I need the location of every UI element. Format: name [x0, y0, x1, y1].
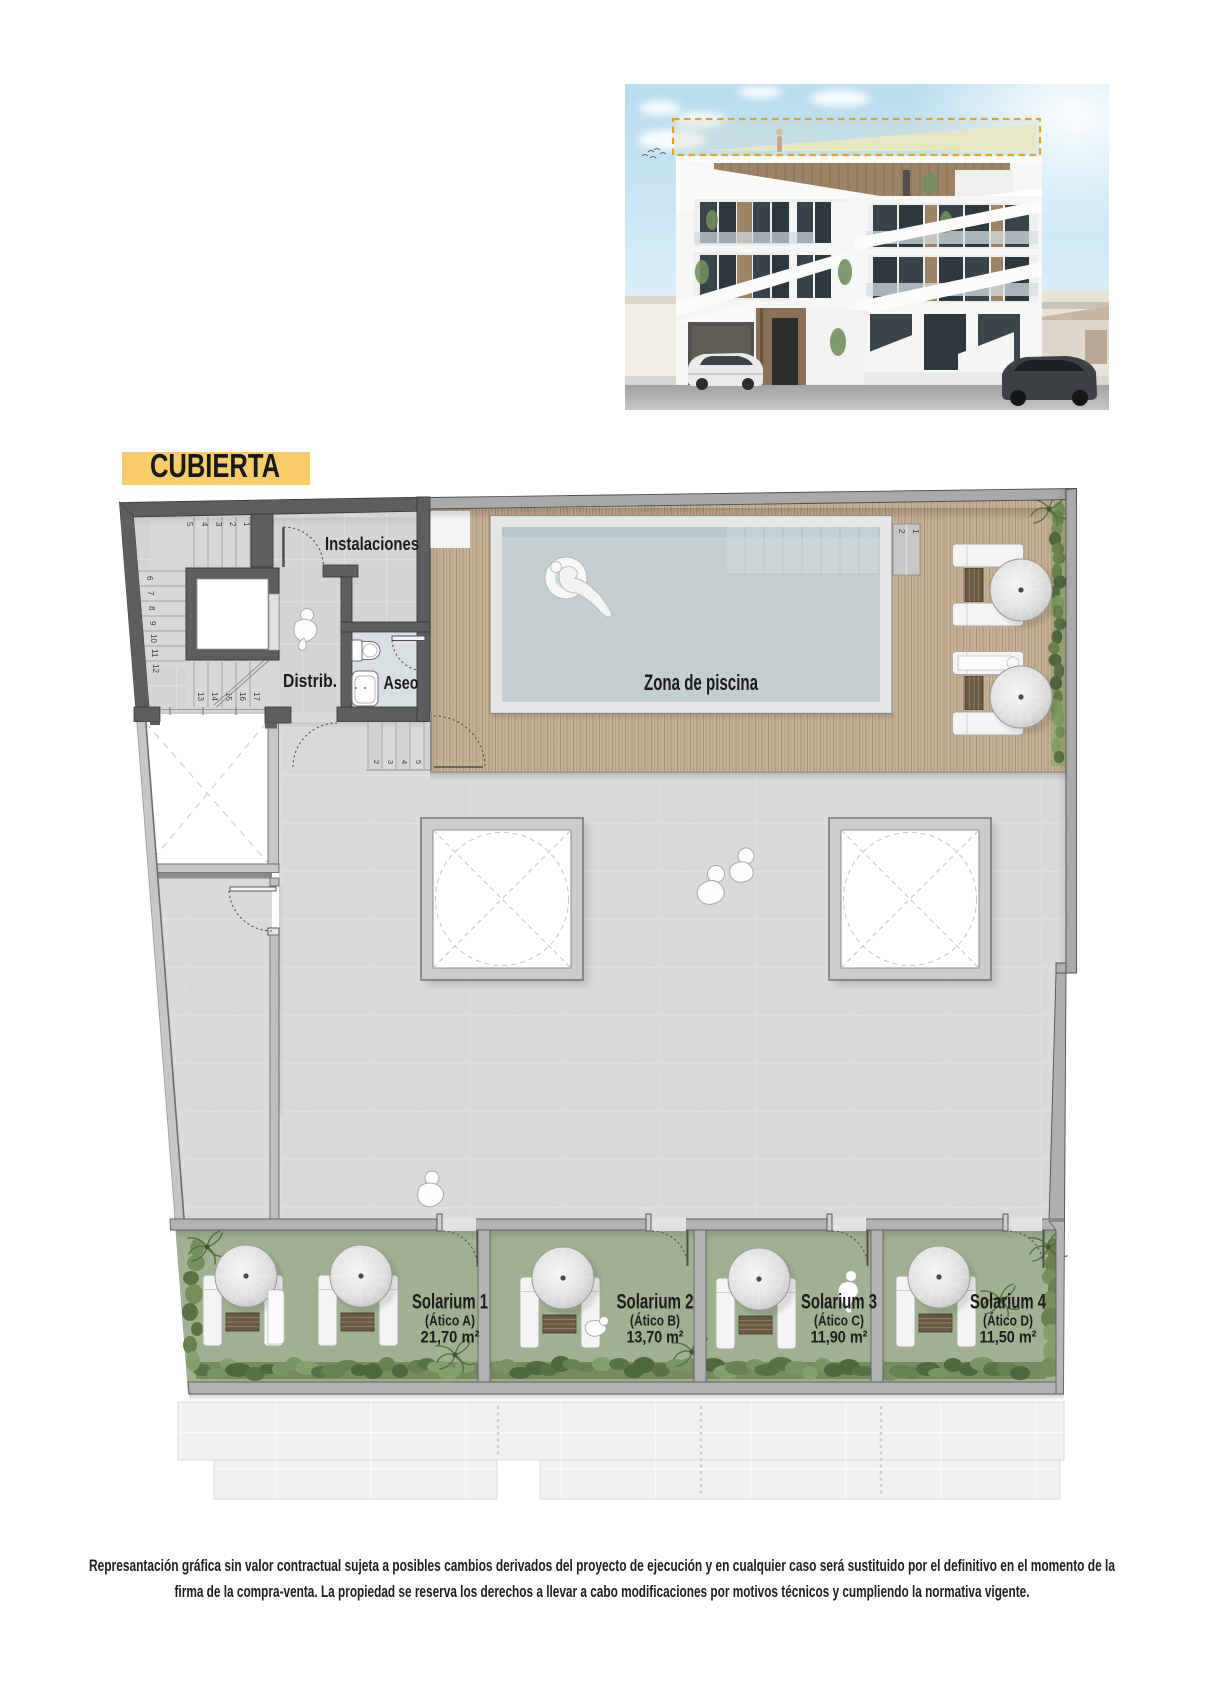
svg-text:(Ático C): (Ático C) [814, 1313, 864, 1330]
svg-text:Solarium 2: Solarium 2 [617, 1291, 694, 1314]
svg-text:14: 14 [210, 692, 219, 701]
svg-text:12: 12 [151, 664, 160, 673]
svg-text:Represantación gráfica sin val: Represantación gráfica sin valor contrac… [89, 1557, 1116, 1575]
svg-text:8: 8 [147, 606, 156, 611]
svg-text:13: 13 [196, 692, 205, 701]
svg-text:21,70 m²: 21,70 m² [421, 1329, 480, 1347]
svg-text:Solarium 4: Solarium 4 [970, 1291, 1046, 1314]
svg-text:11,90 m²: 11,90 m² [811, 1329, 868, 1347]
svg-text:5: 5 [414, 760, 423, 764]
svg-text:Zona de piscina: Zona de piscina [644, 670, 759, 695]
svg-text:Solarium 1: Solarium 1 [412, 1291, 488, 1314]
svg-text:Aseo: Aseo [384, 673, 419, 693]
svg-text:CUBIERTA: CUBIERTA [150, 447, 280, 484]
svg-text:4: 4 [400, 760, 409, 764]
svg-text:(Ático D): (Ático D) [983, 1313, 1033, 1330]
svg-text:(Ático B): (Ático B) [630, 1313, 680, 1330]
svg-text:6: 6 [145, 576, 154, 581]
svg-text:3: 3 [386, 760, 395, 764]
svg-text:11,50 m²: 11,50 m² [980, 1329, 1037, 1347]
svg-text:17: 17 [252, 692, 261, 701]
svg-text:16: 16 [238, 692, 247, 701]
svg-text:9: 9 [148, 621, 157, 626]
svg-text:(Ático A): (Ático A) [425, 1313, 475, 1330]
svg-text:Distrib.: Distrib. [283, 671, 337, 691]
svg-text:Solarium 3: Solarium 3 [801, 1291, 877, 1314]
svg-text:11: 11 [150, 649, 159, 658]
svg-text:firma de la compra-venta. La p: firma de la compra-venta. La propiedad s… [175, 1583, 1030, 1601]
svg-text:10: 10 [149, 634, 158, 643]
svg-text:7: 7 [146, 591, 155, 596]
svg-text:13,70 m²: 13,70 m² [627, 1329, 684, 1347]
svg-text:Instalaciones: Instalaciones [325, 534, 419, 554]
svg-text:1: 1 [911, 529, 920, 534]
svg-text:2: 2 [897, 529, 906, 534]
svg-text:2: 2 [372, 760, 381, 764]
